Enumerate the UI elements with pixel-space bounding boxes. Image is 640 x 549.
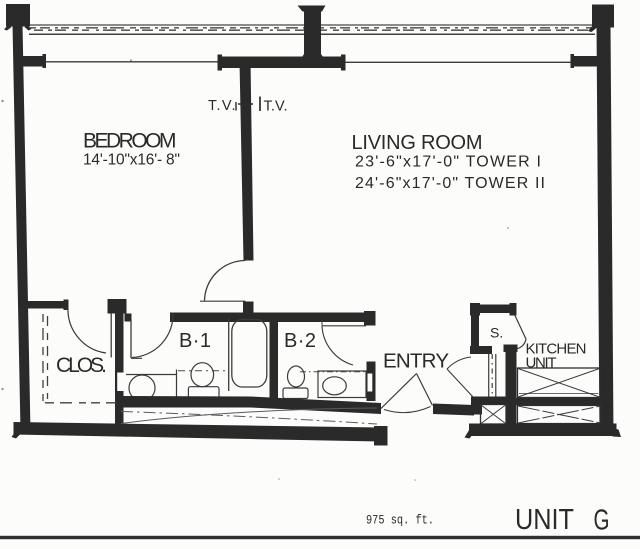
svg-text:CLOS.: CLOS. [56, 354, 107, 377]
svg-text:T.V.: T.V. [264, 99, 288, 115]
svg-text:UNIT: UNIT [526, 355, 557, 372]
svg-text:G: G [594, 505, 610, 537]
svg-text:B·2: B·2 [284, 330, 316, 352]
svg-text:BEDROOM: BEDROOM [83, 130, 177, 153]
svg-text:S.: S. [490, 325, 503, 341]
svg-text:24'-6"x17'-0" TOWER II: 24'-6"x17'-0" TOWER II [355, 175, 545, 192]
svg-text:ENTRY: ENTRY [383, 350, 449, 373]
svg-text:UNIT: UNIT [515, 504, 574, 536]
svg-text:975 sq. ft.: 975 sq. ft. [366, 513, 434, 528]
svg-text:T.V.: T.V. [208, 98, 236, 114]
svg-text:23'-6"x17'-0" TOWER I: 23'-6"x17'-0" TOWER I [355, 154, 541, 171]
svg-text:LIVING ROOM: LIVING ROOM [352, 132, 483, 154]
svg-text:14'-10"x16'- 8": 14'-10"x16'- 8" [83, 152, 180, 169]
svg-text:B·1: B·1 [179, 330, 211, 352]
